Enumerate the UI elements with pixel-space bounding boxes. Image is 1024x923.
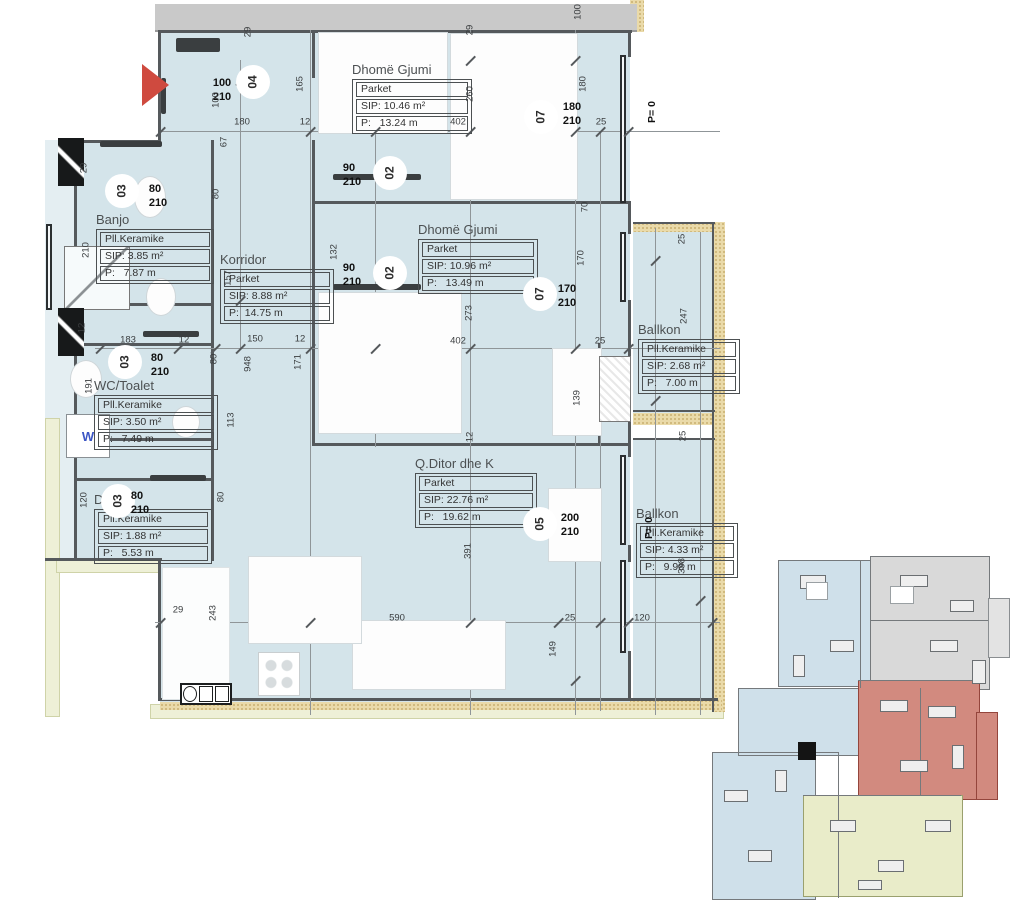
door-leaf [143,331,199,337]
dimension-label: 80 [209,354,220,365]
dimension-label: 25 [595,336,606,347]
position-circle-text: 04 [246,75,260,88]
position-circle-label: 05 [523,507,557,541]
key-plan-furniture [972,660,986,684]
washer-label: W [82,429,94,444]
room-title: WC/Toalet [94,378,218,393]
room-label-q-ditor-dhe-k: Q.Ditor dhe KParketSIP: 22.76 m²P: 19.62… [415,456,537,528]
position-circle-text: 02 [383,166,397,179]
dimension-label: 80 [216,492,227,503]
door-size-label: 80 210 [131,489,149,517]
dimension-label: 402 [450,117,466,128]
wall-bottom [158,698,718,701]
position-circle-text: 07 [534,110,548,123]
dimension-label: 180 [578,76,589,92]
dimension-label: P= 0 [646,101,658,123]
dimension-label: 67 [219,137,230,148]
door-leaf [150,475,206,481]
dimension-label: 29 [465,25,476,36]
dimension-label: 70 [580,202,591,213]
wall-balcony-outer [712,222,714,712]
dimension-label: 247 [679,308,690,324]
door-leaf [100,141,162,147]
room-info-box: Pll.KeramikeSIP: 2.68 m²P: 7.00 m [638,339,740,394]
window [620,232,626,302]
dimension-label: 149 [548,641,559,657]
room-info-box: ParketSIP: 22.76 m²P: 19.62 m [415,473,537,528]
dimension-label: 273 [464,305,475,321]
wall-right-2 [628,201,631,234]
key-plan-wall-line [860,560,861,688]
dimension-label: 80 [211,189,222,200]
stove [258,652,300,696]
wall-wc-top [74,343,214,346]
position-circle-label: 02 [373,256,407,290]
floor-plan-canvas: WDhomë GjumiParketSIP: 10.46 m²P: 13.24 … [0,0,1024,923]
door-size-label: 80 210 [149,182,167,210]
key-plan-wall-line [920,688,921,795]
room-info-row: P: 7.87 m [100,266,210,281]
position-circle-label: 07 [523,277,557,311]
room-info-row: SIP: 4.33 m² [640,543,734,558]
position-circle-text: 03 [118,355,132,368]
key-plan-furniture [928,706,956,718]
window-left [46,224,52,310]
room-title: Korridor [220,252,334,267]
dimension-label: 12 [77,323,88,334]
dimension-label: 150 [247,334,263,345]
key-plan-furniture [858,880,882,890]
key-plan-unit-red [858,680,980,800]
dimension-label: 391 [463,543,474,559]
dimension-label: 948 [243,356,254,372]
door-size-label: 90 210 [343,161,361,189]
wall-living-left [158,560,161,701]
adjacent-structure [155,4,637,32]
dimension-label: 157 [223,270,234,286]
room-info-row: SIP: 10.46 m² [356,99,468,114]
key-plan-table [890,586,914,604]
dimension-line [655,228,656,715]
dimension-label: 260 [465,86,476,102]
room-label-dhom-gjumi: Dhomë GjumiParketSIP: 10.96 m²P: 13.49 m [418,222,538,294]
wall-right-4 [628,545,631,562]
room-title: Q.Ditor dhe K [415,456,537,471]
position-circle-text: 03 [111,494,125,507]
wall-balcony-divider [633,438,715,440]
room-info-row: Pll.Keramike [642,342,736,357]
room-info-row: P: 5.53 m [98,546,208,561]
key-plan-furniture [925,820,951,832]
key-plan-furniture [952,745,964,769]
door-size-label: 180 210 [563,100,581,128]
wall-balcony1-top [633,222,715,224]
sink-bowl [215,686,229,702]
key-plan-furniture [900,760,928,772]
room-label-ballkon: BallkonPll.KeramikeSIP: 2.68 m²P: 7.00 m [638,322,740,394]
room-info-box: Pll.KeramikeSIP: 1.88 m²P: 5.53 m [94,509,212,564]
exterior-wall-hatch [714,230,725,712]
key-plan-furniture [930,640,958,652]
position-circle-label: 07 [524,100,558,134]
dimension-label: 12 [179,335,190,346]
key-plan-furniture [950,600,974,612]
room-info-row: SIP: 1.88 m² [98,529,208,544]
room-info-row: P: 7.00 m [642,376,736,391]
dimension-label: 120 [79,492,90,508]
key-plan-furniture [775,770,787,792]
key-plan-furniture [793,655,805,677]
dimension-label: 25 [677,234,688,245]
key-plan-unit-gray-balcony [988,598,1010,658]
room-info-row: SIP: 8.88 m² [224,289,330,304]
dimension-label: 170 [576,250,587,266]
position-circle-text: 05 [533,517,547,530]
dimension-label: 132 [329,244,340,260]
dining-table [248,556,362,644]
key-plan-furniture [830,640,854,652]
key-plan-unit-blue-bottom [712,752,816,900]
dimension-label: 139 [572,390,583,406]
sink-bowl [183,686,197,702]
room-title: Dhomë Gjumi [352,62,472,77]
dimension-label: 398 [677,558,688,574]
room-info-row: Parket [356,82,468,97]
door-size-label: 200 210 [561,511,579,539]
dimension-label: 29 [173,605,184,616]
room-label-banjo: BanjoPll.KeramikeSIP: 3.85 m²P: 7.87 m [96,212,214,284]
room-info-row: Parket [224,272,330,287]
sofa [352,620,506,690]
key-plan-table [806,582,828,600]
wardrobe-entry [176,38,220,52]
wall-right-1 [628,30,631,57]
dimension-label: 12 [295,334,306,345]
dimension-label: 183 [120,335,136,346]
room-info-box: ParketSIP: 10.96 m²P: 13.49 m [418,239,538,294]
dimension-label: 402 [450,336,466,347]
window [620,55,626,203]
position-circle-label: 03 [108,345,142,379]
dimension-label: 210 [81,242,92,258]
wall-entry-bed1 [312,30,315,78]
dimension-label: 191 [84,378,95,394]
dimension-label: 12 [465,432,476,443]
dimension-label: 165 [295,76,306,92]
dimension-label: 590 [389,613,405,624]
key-plan-wall-line [870,620,988,621]
position-circle-label: 02 [373,156,407,190]
position-circle-text: 07 [533,287,547,300]
position-circle-text: 03 [115,184,129,197]
key-plan-elevator [798,742,816,760]
dimension-label: 12 [300,117,311,128]
dimension-label: 243 [208,605,219,621]
dimension-label: 25 [678,431,689,442]
room-label-korridor: KorridorParketSIP: 8.88 m²P: 14.75 m [220,252,334,324]
door-size-label: 90 210 [343,261,361,289]
sink-bowl [199,686,213,702]
structural-column [599,356,631,422]
room-info-row: SIP: 22.76 m² [419,493,533,508]
room-info-row: P: 14.75 m [224,306,330,321]
room-info-box: ParketSIP: 8.88 m²P: 14.75 m [220,269,334,324]
window [620,455,626,545]
dimension-label: 25 [565,613,576,624]
wall-right-5 [628,651,631,700]
room-info-row: Pll.Keramike [98,398,214,413]
dimension-label: 25 [596,117,607,128]
dimension-label: 29 [243,27,254,38]
dimension-label: 180 [234,117,250,128]
room-info-row: Pll.Keramike [100,232,210,247]
key-plan-wall-line [803,795,961,796]
dimension-label: P= 0 [643,517,655,539]
room-info-row: P: 13.49 m [422,276,534,291]
dimension-label: 120 [634,613,650,624]
room-info-row: P: 19.62 m [419,510,533,525]
window [620,560,626,653]
dimension-label: 113 [226,412,237,427]
key-plan-furniture [878,860,904,872]
door-size-label: 170 210 [558,282,576,310]
key-plan-furniture [880,700,908,712]
key-plan-wall-line [712,752,838,753]
room-info-row: SIP: 3.50 m² [98,415,214,430]
room-title: Dhomë Gjumi [418,222,538,237]
dimension-line [700,232,701,715]
room-info-box: Pll.KeramikeSIP: 3.50 m²P: 7.49 m [94,395,218,450]
room-info-box: Pll.KeramikeSIP: 3.85 m²P: 7.87 m [96,229,214,284]
key-plan-furniture [830,820,856,832]
kitchen-sink [180,683,232,705]
kitchen-counter [162,567,230,700]
key-plan-furniture [724,790,748,802]
key-plan-wall-line [858,680,978,681]
bed-bedroom2 [318,292,462,434]
key-plan-furniture [748,850,772,862]
wall-bed2-living [312,443,630,446]
position-circle-label: 03 [105,174,139,208]
position-circle-text: 02 [383,266,397,279]
entry-arrow [142,64,169,106]
dimension-label: 29 [79,163,90,174]
room-info-row: SIP: 2.68 m² [642,359,736,374]
room-label-wc-toalet: WC/ToaletPll.KeramikeSIP: 3.50 m²P: 7.49… [94,378,218,450]
position-circle-label: 04 [236,65,270,99]
room-info-row: P: 7.49 m [98,432,214,447]
dimension-label: 100 [211,92,222,108]
wall-balcony-divider [633,410,715,412]
room-info-row: SIP: 10.96 m² [422,259,534,274]
door-size-label: 80 210 [151,351,169,379]
room-info-row: Parket [422,242,534,257]
room-info-row: SIP: 3.85 m² [100,249,210,264]
dimension-label: 100 [573,4,584,20]
key-plan-unit-red-balcony [976,712,998,800]
room-title: Banjo [96,212,214,227]
room-info-row: Parket [419,476,533,491]
exterior-wall-hatch [633,413,714,425]
dimension-label: 171 [293,354,304,370]
room-title: Ballkon [638,322,740,337]
key-plan-unit-yellow [803,795,963,897]
